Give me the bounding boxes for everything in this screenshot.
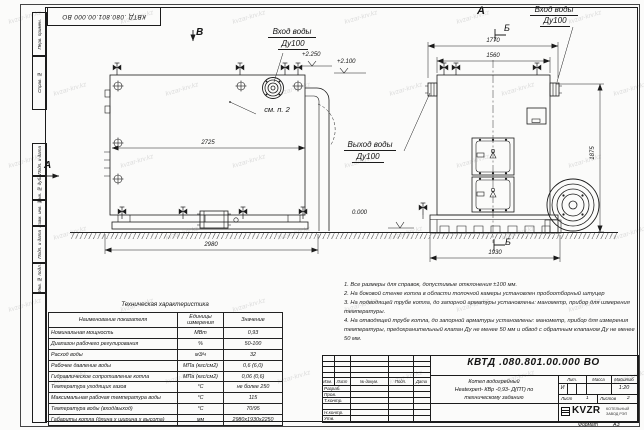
- elevation-0000: 0.000: [352, 210, 367, 216]
- front-view-label: А: [477, 5, 485, 17]
- table-cell: °С: [178, 404, 224, 415]
- tb-sheets-label: Листов: [600, 396, 616, 401]
- table-cell: не более 250: [224, 382, 283, 393]
- table-cell: 32: [224, 349, 283, 360]
- tb-line: [322, 377, 430, 378]
- tb-lit-label: Лит.: [558, 377, 586, 382]
- tb-row-ncontrol: Н.контр.: [324, 410, 343, 415]
- tb-line: [558, 383, 637, 384]
- tb-name-line1: Котел водогрейный: [432, 379, 556, 385]
- table-cell: °С: [178, 382, 224, 393]
- table-cell: 0,6 (6,0): [224, 360, 283, 371]
- table-cell: мм: [178, 415, 224, 426]
- tb-line: [597, 394, 598, 403]
- table-row: Рабочее давление водыМПа (кгс/см2)0,6 (6…: [49, 360, 283, 371]
- tb-line: [430, 403, 558, 404]
- elevation-2100: +2.100: [337, 59, 356, 65]
- tech-table-header: Значение: [224, 313, 283, 328]
- table-cell: Рабочее давление воды: [49, 360, 178, 371]
- note-item: 4. На отводящей трубе котла, до запорной…: [344, 317, 637, 344]
- side-arrow-label: А: [44, 160, 51, 171]
- tb-name-line2: Heatexpert- КВр -0,93- Д(ПТ) по: [432, 387, 556, 393]
- dim-2725: 2725: [188, 140, 228, 146]
- table-cell: 70/95: [224, 404, 283, 415]
- table-cell: Температура уходящих газов: [49, 382, 178, 393]
- tb-col-sign: Подп.: [388, 379, 413, 384]
- table-row: Номинальная мощностьМВт0,93: [49, 328, 283, 339]
- tech-table-header: Наименование показателя: [49, 313, 178, 328]
- table-cell: Гидравлическое сопротивление котла: [49, 371, 178, 382]
- table-row: Расход водым3/ч32: [49, 349, 283, 360]
- tech-table-header: Единицы измерения: [178, 313, 224, 328]
- tb-line: [576, 383, 577, 394]
- table-cell: Расход воды: [49, 349, 178, 360]
- front-outlet-label-line1: Выход воды: [344, 140, 396, 151]
- tb-line: [388, 355, 389, 421]
- front-view-geometry: [388, 27, 604, 262]
- tb-line: [567, 383, 568, 394]
- table-cell: °С: [178, 393, 224, 404]
- drawing-sheet: kvzar-krv.kzkvzar-krv.kzkvzar-krv.kzkvza…: [0, 0, 644, 430]
- table-cell: %: [178, 338, 224, 349]
- table-row: Габариты котла (длина х ширина х высота)…: [49, 415, 283, 426]
- tb-col-list: Лист: [334, 379, 350, 384]
- table-cell: 115: [224, 393, 283, 404]
- elevation-2250: +2.250: [302, 52, 321, 58]
- front-inlet-label-line2: Ду100: [540, 16, 570, 27]
- tech-table-grid: Наименование показателяЕдиницы измерения…: [48, 312, 283, 426]
- table-cell: Диапазон рабочего регулирования: [49, 338, 178, 349]
- table-row: Максимальная рабочая температура воды°С1…: [49, 393, 283, 404]
- see-note-label: см. п. 2: [254, 105, 300, 114]
- tb-line: [322, 415, 430, 416]
- side-view-label: В: [196, 27, 203, 38]
- tb-line: [322, 403, 430, 404]
- company-name-line2: ЗАВОД РЭП: [606, 412, 627, 416]
- table-row: Температура уходящих газов°Сне более 250: [49, 382, 283, 393]
- table-cell: Габариты котла (длина х ширина х высота): [49, 415, 178, 426]
- kvzr-logo-icon: [561, 407, 570, 416]
- section-b-top-label: Б: [504, 23, 510, 33]
- note-item: 2. На боковой стенке котла в области топ…: [344, 290, 637, 299]
- kvzr-logo-text: KVZR: [572, 405, 600, 416]
- front-inlet-label-line1: Вход воды: [530, 5, 578, 16]
- table-cell: МПа (кгс/см2): [178, 360, 224, 371]
- table-cell: МВт: [178, 328, 224, 339]
- tb-line: [322, 361, 430, 362]
- tb-scale-value: 1:20: [611, 385, 637, 391]
- tb-row-checked: Пров.: [324, 392, 336, 397]
- company-name-line1: КОТЕЛЬНЫЙ: [606, 407, 629, 411]
- table-cell: м3/ч: [178, 349, 224, 360]
- tb-line: [413, 355, 414, 421]
- side-inlet-label-line1: Вход воды: [268, 27, 316, 38]
- tb-col-date: Дата: [413, 379, 430, 384]
- tb-row-approved: Утв.: [324, 416, 334, 421]
- tb-line: [322, 366, 430, 367]
- table-row: Гидравлическое сопротивление котлаМПа (к…: [49, 371, 283, 382]
- tb-line: [322, 391, 430, 392]
- note-item: 3. На подводящей трубе котла, до запорно…: [344, 299, 637, 317]
- tb-doc-number: КВТД .080.801.00.000 ВО: [430, 357, 637, 368]
- tb-row-tcontrol: Т.контр.: [324, 398, 343, 403]
- section-b-bottom-label: Б: [505, 237, 511, 247]
- dim-1875: 1875: [590, 138, 596, 168]
- tb-col-izm: Изм.: [322, 379, 334, 384]
- tech-table: Наименование показателяЕдиницы измерения…: [48, 312, 282, 426]
- tb-row-developed: Разраб.: [324, 386, 341, 391]
- tb-line: [558, 403, 637, 404]
- table-cell: Температура воды (вход/выход): [49, 404, 178, 415]
- tb-sheets-value: 2: [627, 396, 630, 401]
- dim-1930: 1930: [475, 250, 515, 256]
- format-value: А3: [613, 422, 620, 428]
- tb-sheet-value: 1: [586, 396, 589, 401]
- dim-1770: 1770: [473, 38, 513, 44]
- tb-sheet-label: Лист: [561, 396, 572, 401]
- dim-2980: 2980: [191, 242, 231, 248]
- table-cell: 2980х1930х2250: [224, 415, 283, 426]
- tb-name-line3: техническому заданию: [432, 395, 556, 401]
- tb-scale-label: Масштаб: [611, 377, 637, 382]
- table-cell: 50-100: [224, 338, 283, 349]
- table-cell: Номинальная мощность: [49, 328, 178, 339]
- tb-line: [322, 372, 430, 373]
- tb-line: [350, 355, 351, 421]
- table-row: Температура воды (вход/выход)°С70/95: [49, 404, 283, 415]
- front-outlet-label-line2: Ду100: [352, 152, 384, 163]
- side-inlet-label-line2: Ду100: [278, 39, 308, 50]
- table-cell: 0,06 (0,6): [224, 371, 283, 382]
- table-row: Диапазон рабочего регулирования%50-100: [49, 338, 283, 349]
- tb-lit-value: И: [558, 385, 567, 391]
- ground-hatch: [70, 232, 618, 239]
- table-cell: Максимальная рабочая температура воды: [49, 393, 178, 404]
- tb-line: [430, 375, 637, 376]
- notes-block: 1. Все размеры для справок, допустимые о…: [344, 281, 637, 345]
- table-cell: МПа (кгс/см2): [178, 371, 224, 382]
- dim-1560: 1560: [473, 53, 513, 59]
- tb-col-doc: № докум.: [350, 379, 388, 384]
- tech-table-title: Техническая характеристика: [48, 301, 282, 308]
- table-cell: 0,93: [224, 328, 283, 339]
- format-label: Формат: [578, 422, 598, 428]
- note-item: 1. Все размеры для справок, допустимые о…: [344, 281, 637, 290]
- tb-mass-label: Масса: [586, 377, 611, 382]
